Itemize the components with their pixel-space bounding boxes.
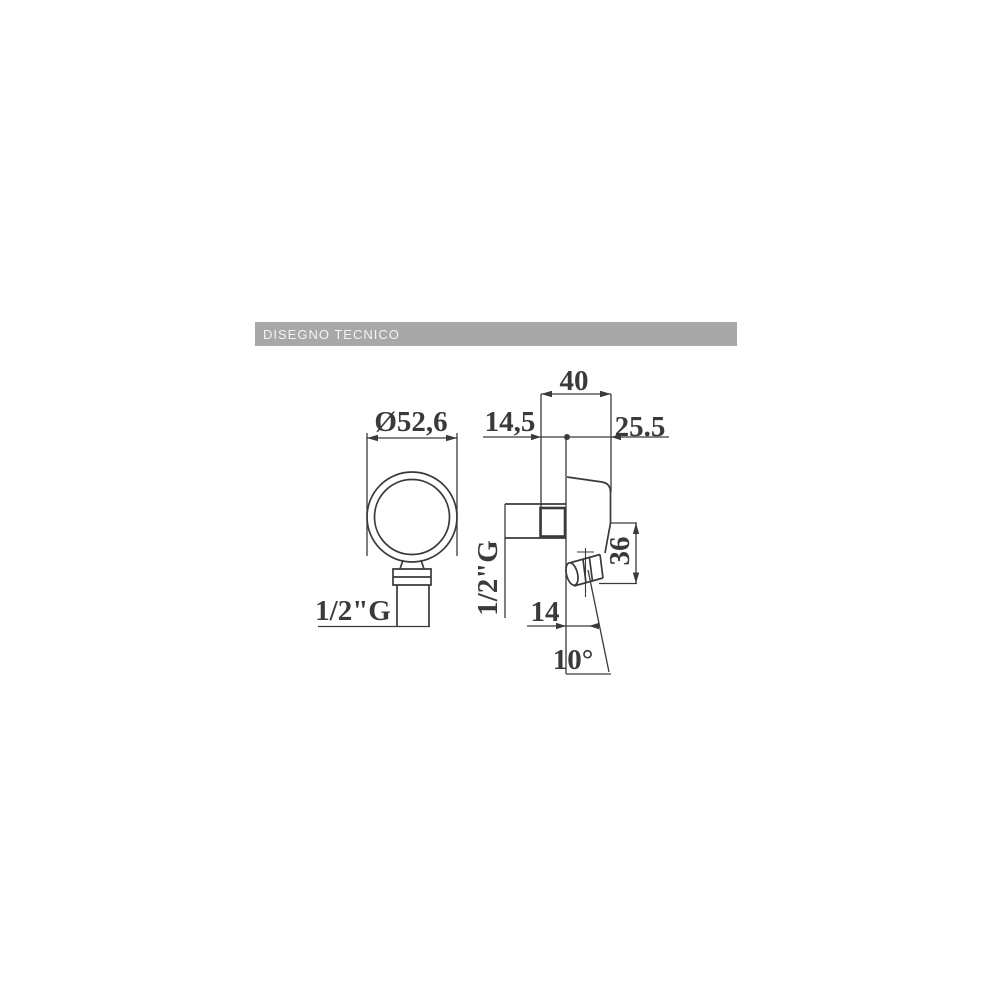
dimension-arrow-icon (367, 435, 378, 441)
side-supply-nipple (541, 508, 566, 537)
dimension-arrow-icon (541, 391, 552, 397)
dimension-point-icon (564, 434, 570, 440)
side-angle-dimension-label: 10° (553, 644, 594, 676)
side-width-dimension-label: 40 (560, 365, 589, 397)
side-thread-label: 1/2"G (472, 540, 504, 616)
front-threaded-pipe (397, 585, 429, 626)
dimension-arrow-icon (633, 573, 639, 584)
technical-drawing-svg: Ø52,6 1/2"G 40 14,5 25.5 (0, 0, 1000, 1000)
dimension-arrow-icon (600, 391, 611, 397)
product-technical-drawing-page: DISEGNO TECNICO Ø52,6 1/2"G 40 (0, 0, 1000, 1000)
front-diameter-dimension-label: Ø52,6 (374, 406, 447, 438)
front-collar-nut (393, 569, 431, 585)
dimension-arrow-icon (446, 435, 457, 441)
side-outlet-nozzle (564, 548, 603, 597)
dimension-arrow-icon (633, 523, 639, 534)
side-depth-front-dimension-label: 25.5 (615, 411, 666, 443)
front-thread-label: 1/2"G (315, 595, 391, 627)
front-view: Ø52,6 1/2"G (315, 406, 457, 627)
front-inner-circle (375, 480, 450, 555)
side-height-dimension-label: 36 (604, 537, 636, 566)
front-outer-circle (367, 472, 457, 562)
side-depth-rear-dimension-label: 14,5 (485, 406, 536, 438)
side-view: 40 14,5 25.5 1/2"G (472, 365, 669, 676)
dimension-arrow-icon (589, 623, 599, 629)
side-offset-dimension-label: 14 (531, 596, 560, 628)
dimension-arrow-icon (556, 623, 566, 629)
dimension-arrow-icon (531, 434, 541, 440)
